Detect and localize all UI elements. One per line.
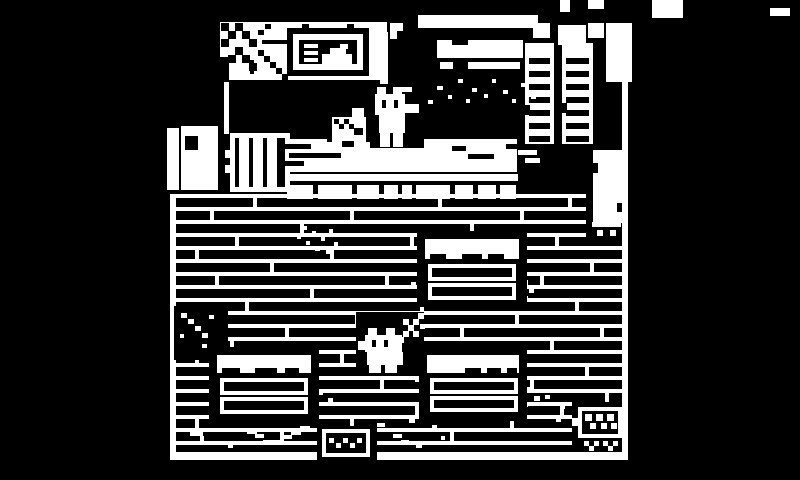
floor-planks-seam	[195, 246, 199, 263]
furniture	[590, 423, 596, 429]
floor-details	[202, 333, 208, 338]
floor-planks-seam	[515, 311, 519, 328]
wall-edge-line	[224, 82, 229, 134]
speck	[472, 88, 477, 92]
floor-planks-seam	[555, 233, 559, 250]
top-walls	[235, 23, 243, 31]
wall-bit	[560, 0, 570, 12]
top-walls	[525, 105, 530, 115]
left-structures	[185, 136, 198, 150]
furniture	[487, 368, 501, 373]
furniture	[434, 400, 514, 408]
speck	[492, 79, 496, 83]
floor-planks-seam	[450, 428, 454, 445]
counter-area	[339, 124, 344, 129]
top-walls	[529, 58, 550, 64]
floor-details	[441, 436, 445, 440]
floor-planks-seam	[540, 272, 544, 289]
top-walls	[440, 62, 520, 69]
counter-area	[289, 153, 341, 158]
furniture	[285, 368, 299, 373]
floor-planks-line	[176, 428, 622, 432]
floor-details	[181, 313, 187, 318]
top-walls	[566, 97, 589, 103]
speck	[521, 83, 525, 87]
bottom-wall	[170, 452, 628, 460]
floor-planks-seam	[410, 233, 414, 250]
cabinet-leg	[597, 230, 603, 236]
speck	[512, 99, 516, 103]
npc-body	[379, 115, 405, 133]
floor-details	[188, 319, 194, 324]
furniture	[592, 222, 621, 227]
floor-planks-seam	[380, 376, 384, 393]
floor-planks-seam	[253, 194, 257, 211]
top-walls	[340, 44, 348, 49]
furniture	[608, 446, 613, 451]
player-eye	[372, 340, 376, 347]
player-leg	[369, 365, 381, 373]
furniture	[585, 414, 592, 421]
furniture	[462, 254, 482, 259]
top-walls	[322, 54, 352, 64]
counter-area	[506, 144, 518, 149]
cabinet-leg	[610, 230, 616, 236]
floor-planks-line	[176, 285, 622, 289]
speck	[525, 158, 540, 163]
furniture	[343, 438, 348, 443]
floor-planks-line	[176, 441, 622, 445]
floor-details	[228, 444, 233, 448]
wall-bit	[652, 0, 683, 18]
furniture	[617, 203, 622, 212]
top-walls	[262, 40, 290, 44]
top-walls	[249, 39, 257, 47]
floor-details	[255, 434, 264, 438]
floor-planks-seam	[270, 259, 274, 276]
furniture	[613, 441, 618, 446]
floor-details	[202, 344, 207, 348]
furniture	[589, 446, 594, 451]
furniture	[594, 441, 599, 446]
floor-planks-line	[176, 298, 622, 302]
counter-area	[402, 185, 412, 199]
floor-details	[321, 237, 325, 241]
floor-details	[401, 440, 409, 444]
floor-details	[200, 436, 204, 445]
furniture	[350, 443, 355, 448]
top-walls	[235, 47, 243, 55]
wall-crack	[221, 23, 229, 31]
counter-area	[478, 185, 496, 199]
top-walls	[221, 39, 229, 47]
wall-step	[533, 23, 550, 38]
speck	[540, 77, 544, 81]
sword-sparkle	[398, 337, 404, 343]
sword-sparkle	[420, 324, 425, 329]
floor-planks-seam	[520, 207, 524, 224]
player-leg	[385, 365, 397, 373]
wall-edge	[380, 32, 388, 85]
top-walls	[529, 84, 550, 90]
wall-piece	[588, 23, 604, 38]
npc-head	[375, 94, 405, 115]
furniture	[224, 401, 304, 410]
top-walls	[304, 51, 318, 55]
floor-details	[326, 250, 330, 254]
floor-planks-line	[176, 207, 622, 211]
door-hinge	[225, 165, 232, 173]
furniture	[601, 423, 607, 429]
top-walls	[566, 71, 589, 77]
floor-planks-seam	[350, 207, 354, 224]
top-walls	[453, 62, 468, 69]
npc-beak	[404, 104, 419, 113]
top-walls	[566, 123, 589, 129]
floor-crack-right	[377, 423, 385, 427]
floor-planks-seam	[330, 246, 334, 263]
floor-details	[334, 242, 338, 246]
floor-planks-seam	[210, 207, 214, 224]
top-walls	[228, 31, 236, 39]
furniture	[434, 382, 514, 390]
floor-planks-seam	[600, 324, 604, 341]
floor-details	[385, 428, 393, 432]
floor-details	[195, 326, 201, 331]
top-walls	[566, 58, 589, 64]
floor-details	[300, 426, 310, 430]
sword-sparkle	[403, 319, 409, 325]
floor-planks-seam	[550, 337, 554, 354]
top-walls	[529, 136, 550, 142]
game-viewport[interactable]	[0, 0, 800, 480]
top-walls	[397, 31, 403, 39]
furniture	[432, 268, 512, 277]
speck	[437, 86, 443, 90]
furniture	[507, 368, 517, 373]
furniture	[593, 163, 598, 173]
furniture	[357, 438, 362, 443]
speck	[531, 95, 536, 99]
floor-details	[209, 315, 214, 319]
speck	[503, 90, 508, 94]
speck	[428, 100, 433, 104]
floor-details	[416, 444, 422, 448]
floor-planks-seam	[585, 363, 589, 380]
floor-details	[263, 440, 283, 444]
floor-planks-line	[176, 194, 622, 198]
counter-area	[500, 185, 516, 199]
floor-details	[329, 229, 333, 233]
speck	[518, 150, 537, 155]
top-walls	[242, 55, 250, 63]
floor-planks-seam	[340, 350, 344, 367]
furniture	[255, 368, 277, 373]
wall-piece	[558, 25, 586, 45]
floor-details	[529, 288, 534, 293]
top-walls	[258, 30, 264, 35]
furniture	[432, 287, 512, 296]
top-walls	[452, 40, 468, 45]
floor-planks-seam	[385, 272, 389, 289]
right-wall	[622, 82, 628, 460]
floor-planks-line	[176, 259, 622, 263]
door-hinge	[225, 150, 232, 158]
cabinet	[593, 150, 622, 223]
counter-area	[384, 185, 398, 199]
speck	[458, 79, 463, 83]
top-walls	[529, 110, 550, 116]
left-structures	[253, 138, 263, 187]
left-structures	[239, 138, 249, 187]
floor-details	[291, 431, 301, 435]
furniture	[224, 382, 304, 391]
floor-details	[302, 226, 307, 230]
top-walls	[242, 31, 250, 39]
player-beak	[358, 341, 366, 350]
floor-details	[312, 231, 316, 235]
top-walls	[529, 123, 550, 129]
floor-details	[411, 282, 416, 287]
furniture	[329, 438, 334, 443]
top-walls	[265, 24, 271, 29]
floor-planks-seam	[460, 324, 464, 341]
furniture	[222, 368, 240, 373]
floor-details	[409, 419, 415, 423]
counter-area	[452, 146, 466, 151]
counter-area	[318, 185, 352, 199]
floor-planks-seam	[245, 298, 249, 315]
counter-base	[287, 185, 313, 199]
speck	[484, 94, 488, 98]
npc-leg	[393, 133, 403, 147]
top-walls	[566, 136, 589, 142]
wall-bit	[770, 8, 790, 16]
floor-planks-seam	[235, 233, 239, 250]
floor-details	[393, 434, 402, 438]
floor-planks-seam	[590, 259, 594, 276]
floor-planks-seam	[575, 298, 579, 315]
counter-front	[285, 174, 518, 181]
sword-sparkle	[413, 331, 419, 337]
top-walls	[566, 110, 589, 116]
player-eye	[384, 340, 388, 347]
top-walls	[304, 58, 318, 62]
furniture	[326, 433, 366, 453]
npc-leg	[380, 133, 390, 147]
top-walls	[228, 55, 236, 63]
furniture	[611, 423, 617, 429]
furniture	[596, 414, 603, 421]
floor-details	[432, 425, 437, 429]
counter-area	[354, 128, 363, 135]
furniture	[488, 254, 504, 259]
floor-details	[283, 435, 292, 439]
speck	[398, 87, 412, 92]
cart-handle	[572, 418, 579, 426]
furniture	[336, 443, 341, 448]
counter-area	[416, 185, 450, 199]
speck	[448, 95, 452, 99]
top-walls	[566, 84, 589, 90]
counter-area	[342, 141, 354, 147]
furniture	[430, 254, 446, 259]
floor-details	[556, 418, 561, 422]
floor-details	[306, 241, 310, 245]
picture-art	[304, 44, 318, 48]
floor-details	[328, 398, 333, 403]
left-wall-slab	[167, 128, 179, 190]
top-wall-strip	[418, 15, 538, 28]
furniture	[465, 368, 481, 373]
player-body	[367, 352, 403, 365]
floor-details	[534, 396, 540, 401]
floor-planks-seam	[195, 415, 199, 432]
counter-area	[284, 161, 304, 166]
top-walls	[220, 57, 229, 80]
npc-eye	[382, 100, 386, 108]
furniture	[607, 414, 614, 421]
floor-planks-seam	[285, 324, 289, 341]
floor-planks-line	[176, 272, 622, 276]
floor-details	[315, 247, 320, 251]
floor-details	[297, 235, 301, 239]
floor-details	[180, 334, 184, 338]
counter-area	[455, 185, 473, 199]
floor-details	[560, 405, 565, 409]
floor-details	[545, 395, 550, 399]
floor-planks-seam	[310, 285, 314, 302]
counter-area	[468, 154, 494, 159]
floor-planks-seam	[215, 272, 219, 289]
wall-bit	[588, 0, 604, 9]
floor-planks-seam	[568, 194, 572, 211]
counter-grain	[285, 144, 311, 149]
floor-planks-line	[176, 220, 622, 224]
top-walls	[562, 103, 567, 113]
counter-area	[357, 185, 379, 199]
floor-planks-seam	[530, 376, 534, 393]
sign-board	[437, 40, 523, 58]
left-structures	[267, 138, 277, 187]
npc-eye	[394, 100, 398, 108]
top-walls	[250, 60, 254, 74]
wall-corner	[606, 23, 632, 82]
speck	[466, 99, 470, 103]
